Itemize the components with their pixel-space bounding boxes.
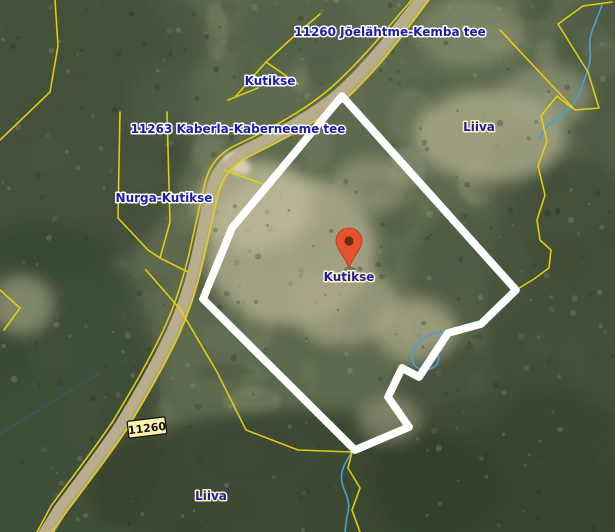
- canopy-speckle: [462, 221, 466, 225]
- canopy-speckle: [62, 105, 64, 107]
- canopy-speckle: [61, 443, 63, 445]
- canopy-speckle: [347, 368, 353, 374]
- canopy-speckle: [21, 460, 25, 464]
- canopy-speckle: [422, 346, 425, 349]
- canopy-speckle: [431, 427, 437, 433]
- canopy-speckle: [251, 4, 258, 11]
- canopy-speckle: [223, 406, 225, 408]
- canopy-speckle: [169, 140, 174, 145]
- canopy-speckle: [548, 306, 554, 312]
- canopy-speckle: [497, 234, 500, 237]
- canopy-speckle: [606, 277, 608, 279]
- canopy-speckle: [592, 291, 596, 295]
- canopy-speckle: [497, 523, 501, 527]
- canopy-speckle: [180, 155, 182, 157]
- canopy-speckle: [485, 451, 490, 456]
- canopy-speckle: [395, 333, 397, 335]
- canopy-speckle: [436, 88, 438, 90]
- canopy-speckle: [80, 106, 85, 111]
- canopy-speckle: [329, 229, 333, 233]
- canopy-speckle: [544, 210, 551, 217]
- canopy-speckle: [131, 500, 133, 502]
- canopy-speckle: [603, 330, 608, 335]
- canopy-speckle: [508, 208, 514, 214]
- canopy-speckle: [595, 191, 600, 196]
- canopy-speckle: [421, 321, 426, 326]
- canopy-speckle: [491, 182, 493, 184]
- canopy-speckle: [473, 335, 477, 339]
- canopy-speckle: [426, 211, 433, 218]
- canopy-speckle: [252, 393, 255, 396]
- canopy-speckle: [59, 480, 65, 486]
- canopy-speckle: [129, 211, 132, 214]
- canopy-speckle: [298, 274, 302, 278]
- canopy-speckle: [156, 69, 160, 73]
- canopy-speckle: [462, 213, 467, 218]
- canopy-speckle: [397, 82, 401, 86]
- canopy-speckle: [425, 147, 430, 152]
- canopy-speckle: [419, 127, 422, 130]
- canopy-speckle: [379, 274, 385, 280]
- canopy-speckle: [162, 59, 166, 63]
- canopy-speckle: [387, 162, 392, 167]
- canopy-speckle: [238, 284, 242, 288]
- canopy-speckle: [101, 4, 103, 6]
- map-canvas[interactable]: 11260 Jõelähtme-Kemba tee Kutikse 11263 …: [0, 0, 615, 532]
- canopy-speckle: [537, 336, 540, 339]
- canopy-speckle: [501, 390, 506, 395]
- canopy-speckle: [52, 467, 54, 469]
- canopy-speckle: [588, 293, 592, 297]
- canopy-speckle: [494, 144, 499, 149]
- canopy-speckle: [476, 333, 483, 340]
- canopy-speckle: [456, 109, 459, 112]
- canopy-speckle: [547, 359, 552, 364]
- canopy-speckle: [338, 292, 342, 296]
- canopy-speckle: [351, 331, 355, 335]
- place-label-kutikse-north: Kutikse: [245, 74, 296, 88]
- canopy-speckle: [56, 472, 59, 475]
- canopy-speckle: [416, 437, 419, 440]
- canopy-speckle: [411, 92, 414, 95]
- canopy-speckle: [533, 264, 537, 268]
- canopy-speckle: [318, 446, 320, 448]
- canopy-speckle: [430, 233, 433, 236]
- canopy-speckle: [345, 478, 348, 481]
- canopy-speckle: [426, 449, 429, 452]
- canopy-speckle: [496, 6, 501, 11]
- canopy-speckle: [46, 235, 52, 241]
- canopy-speckle: [538, 440, 541, 443]
- canopy-speckle: [287, 424, 292, 429]
- canopy-speckle: [397, 3, 401, 7]
- canopy-speckle: [551, 410, 555, 414]
- canopy-speckle: [417, 334, 422, 339]
- canopy-speckle: [458, 257, 462, 261]
- canopy-speckle: [36, 263, 39, 266]
- canopy-speckle: [272, 475, 276, 479]
- canopy-speckle: [52, 461, 54, 463]
- canopy-speckle: [38, 387, 41, 390]
- canopy-speckle: [125, 361, 127, 363]
- canopy-speckle: [147, 346, 152, 351]
- canopy-speckle: [157, 329, 159, 331]
- canopy-speckle: [169, 52, 173, 56]
- canopy-speckle: [160, 386, 162, 388]
- canopy-speckle: [343, 179, 348, 184]
- canopy-speckle: [520, 270, 523, 273]
- canopy-speckle: [320, 9, 325, 14]
- canopy-speckle: [266, 335, 270, 339]
- canopy-speckle: [535, 120, 539, 124]
- canopy-speckle: [38, 382, 42, 386]
- canopy-speckle: [132, 236, 135, 239]
- canopy-speckle: [53, 216, 58, 221]
- canopy-speckle: [299, 48, 302, 51]
- canopy-speckle: [248, 249, 253, 254]
- canopy-speckle: [190, 383, 196, 389]
- canopy-speckle: [91, 114, 95, 118]
- canopy-speckle: [296, 97, 302, 103]
- canopy-speckle: [58, 108, 60, 110]
- canopy-speckle: [513, 412, 515, 414]
- canopy-speckle: [320, 82, 323, 85]
- canopy-speckle: [588, 203, 591, 206]
- canopy-speckle: [604, 301, 606, 303]
- canopy-speckle: [528, 453, 531, 456]
- canopy-speckle: [179, 481, 182, 484]
- canopy-speckle: [315, 40, 317, 42]
- canopy-speckle: [417, 45, 419, 47]
- canopy-speckle: [56, 380, 63, 387]
- canopy-speckle: [54, 268, 57, 271]
- canopy-speckle: [102, 187, 106, 191]
- canopy-speckle: [446, 320, 453, 327]
- canopy-speckle: [154, 84, 161, 91]
- canopy-speckle: [24, 501, 26, 503]
- canopy-speckle: [544, 273, 550, 279]
- canopy-speckle: [379, 68, 383, 72]
- canopy-speckle: [75, 166, 80, 171]
- canopy-speckle: [568, 130, 571, 133]
- canopy-speckle: [268, 227, 274, 233]
- canopy-speckle: [226, 38, 229, 41]
- canopy-speckle: [305, 422, 307, 424]
- forest-blob: [196, 365, 253, 379]
- canopy-speckle: [65, 150, 69, 154]
- canopy-speckle: [504, 227, 507, 230]
- canopy-speckle: [112, 330, 115, 333]
- canopy-speckle: [54, 322, 60, 328]
- canopy-speckle: [140, 512, 144, 516]
- canopy-speckle: [10, 376, 17, 383]
- canopy-speckle: [337, 309, 340, 312]
- canopy-speckle: [222, 40, 225, 43]
- canopy-speckle: [306, 491, 308, 493]
- canopy-speckle: [77, 54, 79, 56]
- canopy-speckle: [218, 26, 221, 29]
- canopy-speckle: [68, 335, 71, 338]
- canopy-speckle: [121, 350, 124, 353]
- canopy-speckle: [527, 136, 531, 140]
- canopy-speckle: [130, 373, 135, 378]
- canopy-speckle: [324, 294, 326, 296]
- canopy-speckle: [181, 514, 185, 518]
- canopy-speckle: [58, 40, 61, 43]
- canopy-speckle: [443, 391, 449, 397]
- canopy-speckle: [522, 510, 525, 513]
- canopy-speckle: [67, 69, 71, 73]
- canopy-speckle: [16, 117, 19, 120]
- canopy-speckle: [455, 509, 458, 512]
- canopy-speckle: [556, 208, 561, 213]
- canopy-speckle: [536, 454, 541, 459]
- forest-blob: [305, 356, 319, 394]
- canopy-speckle: [80, 49, 84, 53]
- canopy-speckle: [265, 348, 268, 351]
- canopy-speckle: [344, 351, 349, 356]
- canopy-speckle: [162, 235, 164, 237]
- canopy-speckle: [254, 300, 258, 304]
- canopy-speckle: [231, 355, 237, 361]
- canopy-speckle: [255, 253, 261, 259]
- canopy-speckle: [75, 517, 80, 522]
- canopy-speckle: [489, 437, 491, 439]
- canopy-speckle: [102, 153, 104, 155]
- canopy-speckle: [380, 246, 382, 248]
- canopy-speckle: [197, 456, 202, 461]
- canopy-speckle: [89, 436, 94, 441]
- canopy-speckle: [494, 10, 497, 13]
- canopy-speckle: [7, 187, 11, 191]
- canopy-speckle: [556, 138, 560, 142]
- canopy-speckle: [193, 509, 196, 512]
- canopy-speckle: [564, 84, 570, 90]
- canopy-speckle: [483, 117, 485, 119]
- canopy-speckle: [427, 457, 430, 460]
- canopy-speckle: [33, 340, 38, 345]
- canopy-speckle: [310, 140, 313, 143]
- canopy-speckle: [387, 3, 392, 8]
- canopy-speckle: [577, 232, 581, 236]
- marker-label-kutikse: Kutikse: [324, 270, 375, 284]
- canopy-speckle: [375, 262, 381, 268]
- canopy-speckle: [299, 287, 303, 291]
- canopy-speckle: [375, 189, 381, 195]
- canopy-speckle: [115, 392, 121, 398]
- canopy-speckle: [456, 176, 458, 178]
- canopy-speckle: [557, 427, 563, 433]
- canopy-speckle: [312, 245, 315, 248]
- canopy-speckle: [199, 520, 201, 522]
- canopy-speckle: [438, 502, 442, 506]
- canopy-speckle: [21, 260, 25, 264]
- canopy-speckle: [185, 363, 189, 367]
- canopy-speckle: [288, 281, 293, 286]
- canopy-speckle: [161, 210, 163, 212]
- canopy-speckle: [608, 210, 611, 213]
- canopy-speckle: [373, 170, 377, 174]
- canopy-speckle: [512, 224, 514, 226]
- place-label-nurga-kutikse: Nurga-Kutikse: [116, 191, 213, 205]
- canopy-speckle: [245, 229, 250, 234]
- canopy-speckle: [497, 120, 504, 127]
- canopy-speckle: [468, 341, 472, 345]
- canopy-speckle: [42, 248, 44, 250]
- canopy-speckle: [363, 206, 367, 210]
- canopy-speckle: [478, 295, 484, 301]
- canopy-speckle: [327, 485, 330, 488]
- canopy-speckle: [302, 58, 304, 60]
- canopy-speckle: [45, 134, 50, 139]
- canopy-speckle: [1, 344, 6, 349]
- canopy-speckle: [171, 377, 174, 380]
- canopy-speckle: [224, 291, 230, 297]
- canopy-speckle: [422, 140, 428, 146]
- canopy-speckle: [224, 483, 229, 488]
- canopy-speckle: [122, 315, 124, 317]
- canopy-speckle: [473, 73, 477, 77]
- canopy-speckle: [310, 157, 313, 160]
- canopy-speckle: [436, 371, 442, 377]
- canopy-speckle: [312, 314, 315, 317]
- canopy-speckle: [419, 423, 422, 426]
- place-label-liiva-south: Liiva: [195, 489, 227, 503]
- canopy-speckle: [502, 433, 506, 437]
- canopy-speckle: [16, 36, 19, 39]
- canopy-speckle: [81, 459, 84, 462]
- canopy-speckle: [232, 75, 236, 79]
- canopy-speckle: [287, 209, 290, 212]
- canopy-speckle: [83, 513, 88, 518]
- canopy-speckle: [86, 322, 90, 326]
- canopy-speckle: [237, 300, 241, 304]
- canopy-speckle: [598, 324, 602, 328]
- canopy-speckle: [306, 0, 308, 2]
- canopy-speckle: [549, 295, 553, 299]
- canopy-speckle: [204, 34, 209, 39]
- canopy-speckle: [304, 93, 310, 99]
- canopy-speckle: [194, 21, 196, 23]
- canopy-speckle: [98, 146, 104, 152]
- canopy-speckle: [498, 57, 501, 60]
- canopy-speckle: [133, 359, 136, 362]
- canopy-speckle: [570, 141, 574, 145]
- canopy-speckle: [192, 12, 197, 17]
- pin-hole: [344, 236, 353, 245]
- canopy-speckle: [305, 337, 308, 340]
- canopy-speckle: [426, 275, 431, 280]
- canopy-speckle: [388, 366, 392, 370]
- canopy-speckle: [252, 372, 254, 374]
- canopy-speckle: [136, 290, 142, 296]
- canopy-speckle: [234, 259, 241, 266]
- canopy-speckle: [299, 268, 304, 273]
- forest-blob: [218, 1, 239, 15]
- canopy-speckle: [285, 53, 287, 55]
- canopy-speckle: [530, 299, 533, 302]
- canopy-speckle: [592, 460, 594, 462]
- canopy-speckle: [25, 53, 27, 55]
- canopy-speckle: [108, 168, 113, 173]
- canopy-speckle: [142, 41, 147, 46]
- canopy-speckle: [112, 107, 118, 113]
- canopy-speckle: [302, 491, 306, 495]
- canopy-speckle: [213, 67, 219, 73]
- canopy-speckle: [376, 425, 380, 429]
- canopy-speckle: [223, 6, 225, 8]
- canopy-speckle: [41, 447, 47, 453]
- canopy-speckle: [599, 225, 604, 230]
- canopy-speckle: [195, 403, 202, 410]
- canopy-speckle: [436, 447, 441, 452]
- canopy-speckle: [595, 352, 597, 354]
- canopy-speckle: [129, 274, 132, 277]
- canopy-speckle: [90, 395, 96, 401]
- map-viewport[interactable]: 11260 Jõelähtme-Kemba tee Kutikse 11263 …: [0, 0, 615, 532]
- canopy-speckle: [581, 256, 583, 258]
- canopy-speckle: [523, 463, 527, 467]
- canopy-speckle: [189, 425, 193, 429]
- canopy-speckle: [129, 12, 134, 17]
- canopy-speckle: [545, 116, 548, 119]
- canopy-speckle: [196, 61, 198, 63]
- canopy-speckle: [1, 26, 3, 28]
- canopy-speckle: [457, 298, 460, 301]
- canopy-speckle: [329, 180, 332, 183]
- canopy-speckle: [544, 92, 549, 97]
- canopy-speckle: [125, 332, 131, 338]
- canopy-speckle: [29, 251, 31, 253]
- canopy-speckle: [298, 16, 304, 22]
- canopy-speckle: [1, 38, 5, 42]
- canopy-speckle: [266, 224, 269, 227]
- canopy-speckle: [298, 495, 304, 501]
- canopy-speckle: [490, 227, 493, 230]
- canopy-speckle: [273, 1, 278, 6]
- canopy-speckle: [443, 41, 448, 46]
- canopy-speckle: [545, 364, 547, 366]
- canopy-speckle: [570, 310, 576, 316]
- canopy-speckle: [10, 44, 15, 49]
- canopy-speckle: [464, 182, 470, 188]
- road-label-11263-kaberla: 11263 Kaberla-Kaberneeme tee: [131, 122, 346, 136]
- canopy-speckle: [426, 514, 429, 517]
- canopy-speckle: [479, 456, 484, 461]
- canopy-speckle: [48, 4, 54, 10]
- canopy-speckle: [127, 521, 130, 524]
- canopy-speckle: [441, 95, 445, 99]
- canopy-speckle: [597, 290, 602, 295]
- canopy-speckle: [104, 516, 106, 518]
- canopy-speckle: [85, 236, 88, 239]
- canopy-speckle: [389, 77, 393, 81]
- canopy-speckle: [609, 340, 611, 342]
- canopy-speckle: [2, 181, 5, 184]
- canopy-speckle: [35, 172, 42, 179]
- canopy-speckle: [49, 48, 55, 54]
- canopy-speckle: [115, 51, 121, 57]
- canopy-speckle: [400, 60, 404, 64]
- canopy-speckle: [506, 67, 510, 71]
- forest-blob: [396, 251, 410, 284]
- canopy-speckle: [314, 301, 319, 306]
- canopy-speckle: [526, 114, 532, 120]
- canopy-speckle: [104, 392, 109, 397]
- canopy-speckle: [233, 204, 237, 208]
- canopy-speckle: [377, 377, 382, 382]
- canopy-speckle: [176, 28, 181, 33]
